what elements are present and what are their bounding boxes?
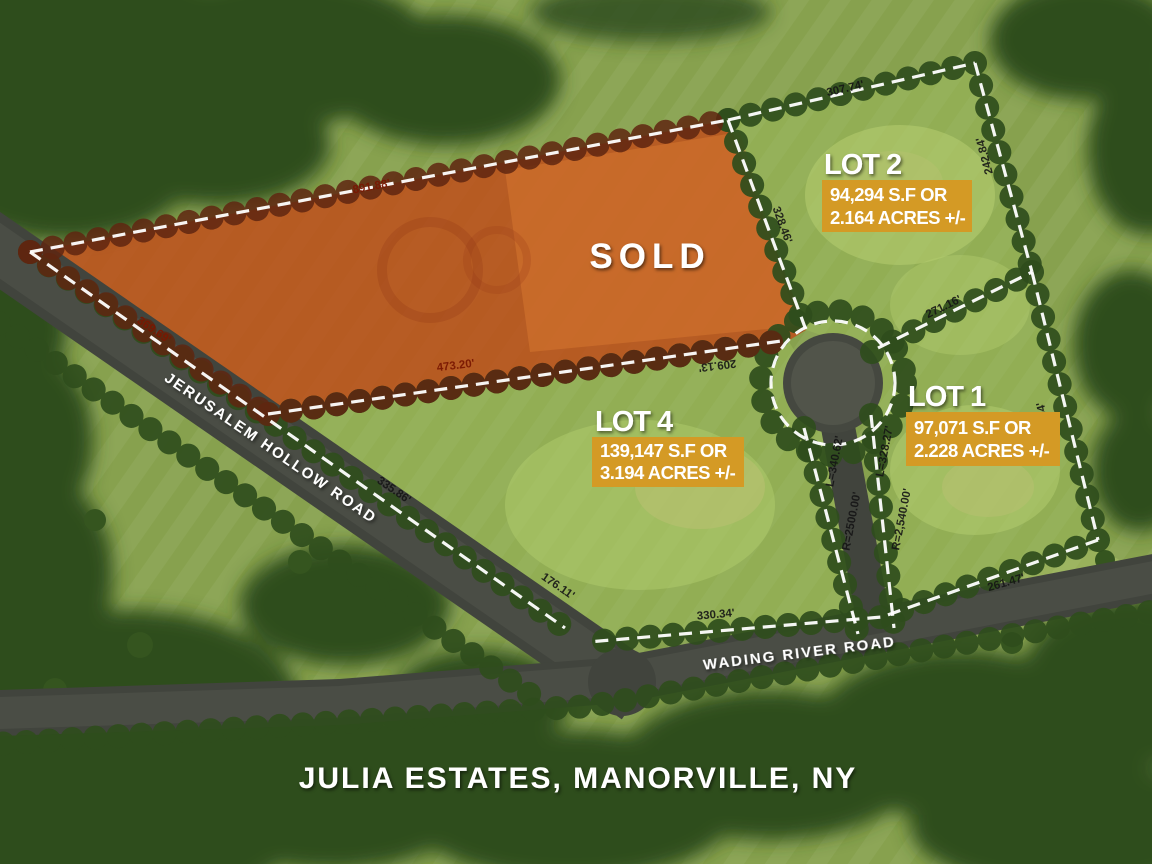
- sold-label: SOLD: [589, 237, 710, 276]
- lot-1-name: LOT 1: [908, 381, 986, 413]
- forest-patch: [330, 15, 560, 145]
- lot-4-area-acres: 3.194 ACRES +/-: [600, 462, 736, 483]
- tree: [127, 632, 153, 658]
- lot-4-name: LOT 4: [595, 406, 673, 438]
- lot-2-name: LOT 2: [824, 149, 901, 181]
- tree: [288, 550, 312, 574]
- lot-1-area-acres: 2.228 ACRES +/-: [914, 440, 1050, 461]
- page-title: JULIA ESTATES, MANORVILLE, NY: [299, 762, 858, 795]
- tree: [84, 509, 106, 531]
- lot-1-area-sf: 97,071 S.F OR: [914, 417, 1031, 438]
- aerial-map-canvas: 891.88' 369.69' 473.20' 209.13' 307.74' …: [0, 0, 1152, 864]
- lot-2-area-sf: 94,294 S.F OR: [830, 184, 947, 205]
- forest-patch: [100, 85, 330, 205]
- plat-map: 891.88' 369.69' 473.20' 209.13' 307.74' …: [0, 0, 1152, 864]
- lot-4-area-sf: 139,147 S.F OR: [600, 440, 727, 461]
- lot-2-area-acres: 2.164 ACRES +/-: [830, 207, 966, 228]
